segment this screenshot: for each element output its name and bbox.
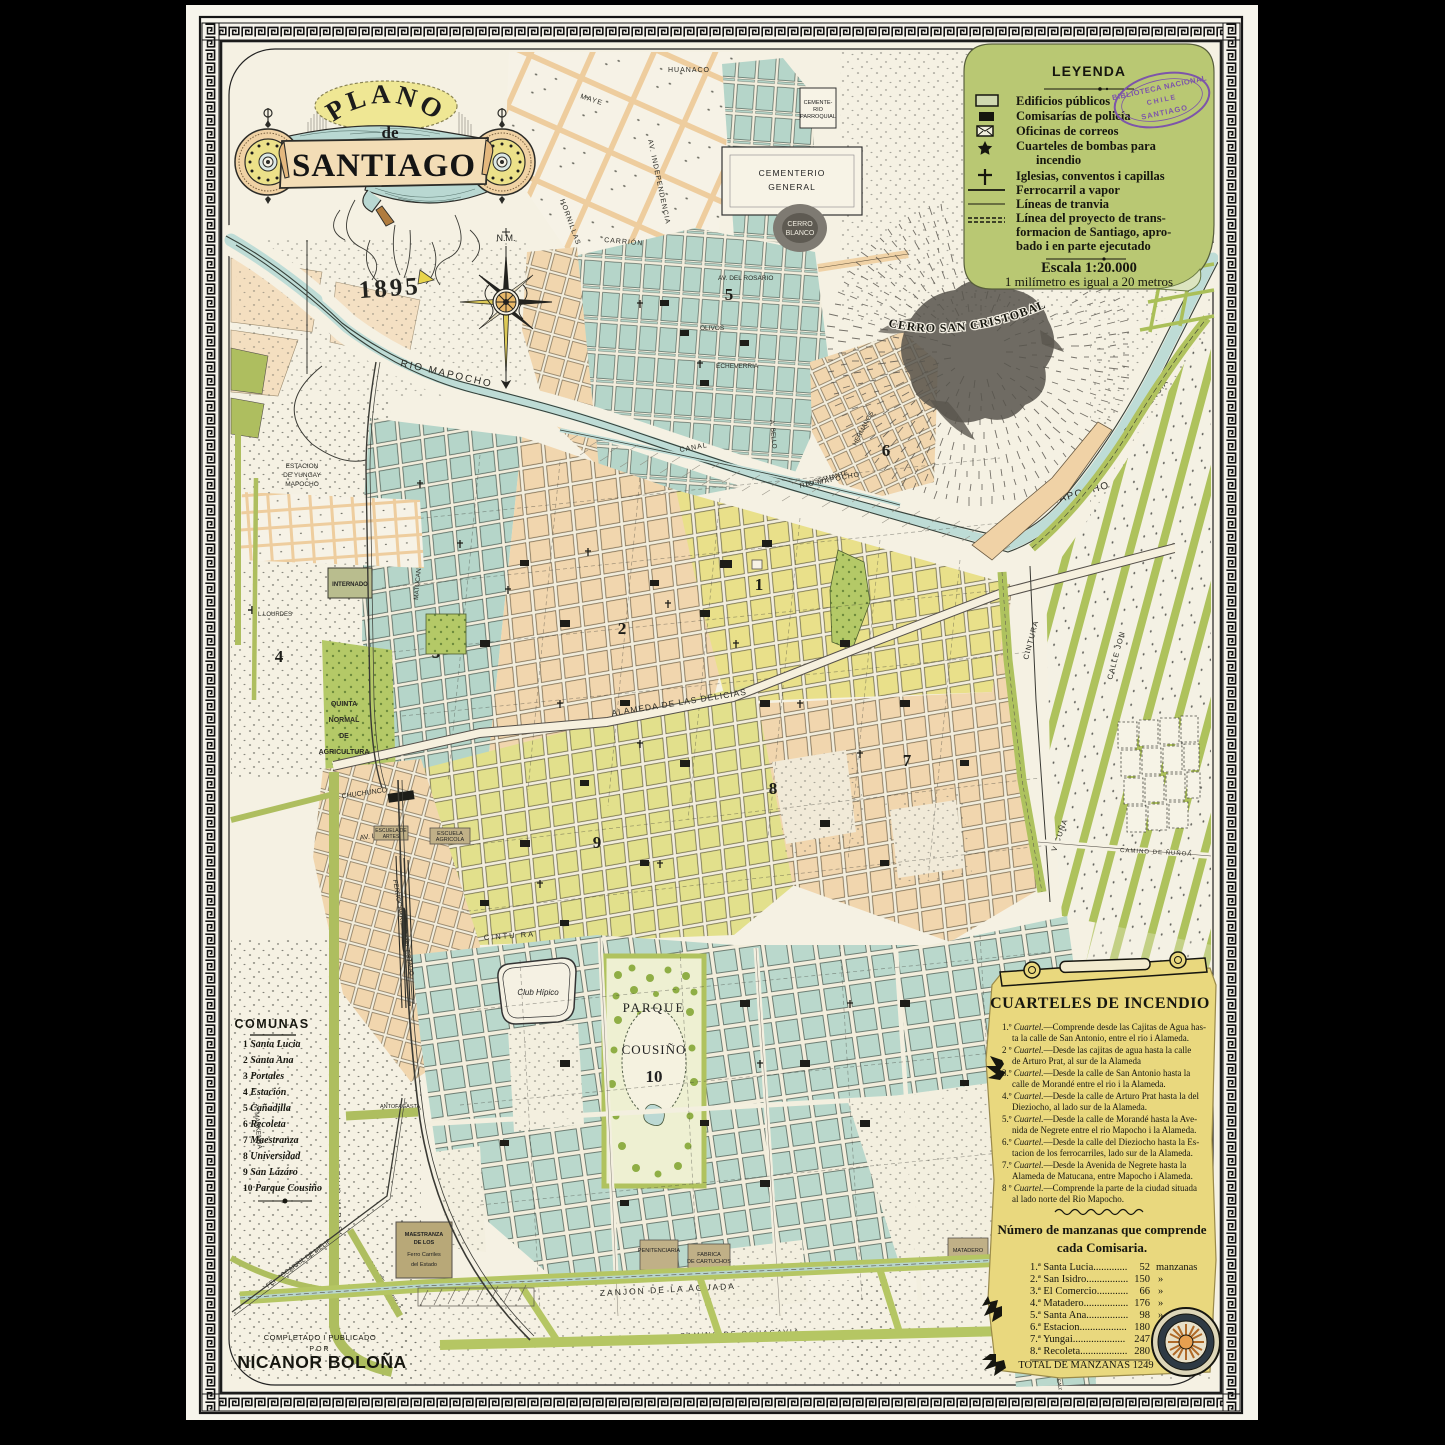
svg-text:cada Comisaria.: cada Comisaria. [1057, 1240, 1147, 1255]
svg-text:SANTIAGO: SANTIAGO [292, 148, 476, 184]
svg-text:1 milímetro es igual a 20 metr: 1 milímetro es igual a 20 metros [1005, 274, 1173, 289]
svg-text:7 Maestranza: 7 Maestranza [243, 1135, 299, 1146]
svg-text:MAPOCHO: MAPOCHO [285, 481, 319, 488]
svg-text:6 Recoleta: 6 Recoleta [243, 1119, 286, 1130]
svg-text:3 Portales: 3 Portales [243, 1071, 284, 1082]
svg-text:formacion de Santiago, apro-: formacion de Santiago, apro- [1016, 225, 1171, 239]
svg-text:INTERNADO: INTERNADO [332, 582, 368, 588]
svg-text:COUSIÑO: COUSIÑO [622, 1042, 687, 1057]
svg-text:DE CARTUCHOS: DE CARTUCHOS [687, 1259, 731, 1265]
svg-text:8 º Cuartel.—Comprende la part: 8 º Cuartel.—Comprende la parte de la ci… [1002, 1183, 1197, 1193]
svg-text:LEYENDA: LEYENDA [1052, 63, 1126, 79]
svg-text:QUINTA: QUINTA [331, 701, 357, 708]
svg-text:2: 2 [618, 619, 627, 638]
svg-text:de Arturo Prat, al sur de la A: de Arturo Prat, al sur de la Alameda [1012, 1056, 1141, 1066]
svg-text:7: 7 [903, 751, 912, 770]
svg-text:4.º Cuartel.—Desde la calle de: 4.º Cuartel.—Desde la calle de Arturo Pr… [1002, 1091, 1200, 1101]
svg-text:»: » [1158, 1274, 1163, 1285]
svg-text:66: 66 [1140, 1286, 1151, 1297]
svg-text:5: 5 [725, 285, 734, 304]
svg-text:Ferrocarril a vapor: Ferrocarril a vapor [1016, 183, 1120, 197]
svg-text:5 Cañadilla: 5 Cañadilla [243, 1103, 291, 1114]
svg-text:1: 1 [755, 575, 764, 594]
svg-text:6.ª Estacion.................: 6.ª Estacion.................. [1030, 1322, 1127, 1333]
svg-text:Cuarteles de bombas para: Cuarteles de bombas para [1016, 139, 1157, 153]
svg-text:1 Santa Lucia: 1 Santa Lucia [243, 1039, 301, 1050]
svg-text:1.ª Santa Lucia.............: 1.ª Santa Lucia............. [1030, 1262, 1127, 1273]
svg-text:Club Hípico: Club Hípico [517, 988, 559, 997]
svg-text:2.ª San Isidro...............: 2.ª San Isidro................ [1030, 1274, 1128, 1285]
svg-text:5.º Cuartel.—Desde la calle de: 5.º Cuartel.—Desde la calle de Morandé h… [1002, 1114, 1197, 1124]
svg-text:98: 98 [1140, 1310, 1151, 1321]
svg-text:150: 150 [1134, 1274, 1150, 1285]
svg-text:COMPLETADO I PUBLICADO: COMPLETADO I PUBLICADO [264, 1333, 377, 1342]
svg-text:AGRICOLA: AGRICOLA [436, 837, 465, 843]
svg-text:1895: 1895 [358, 273, 422, 304]
svg-text:CEMENTERIO: CEMENTERIO [759, 168, 826, 178]
svg-text:4 Estación: 4 Estación [243, 1087, 287, 1098]
svg-text:COMUNAS: COMUNAS [234, 1017, 309, 1031]
svg-text:Líneas de tranvia: Líneas de tranvia [1016, 197, 1110, 211]
svg-text:»: » [1158, 1298, 1163, 1309]
svg-text:Oficinas de correos: Oficinas de correos [1016, 124, 1119, 138]
svg-text:9: 9 [593, 833, 602, 852]
svg-text:RIO: RIO [813, 107, 824, 113]
svg-text:incendio: incendio [1036, 153, 1081, 167]
svg-text:DE: DE [339, 733, 349, 740]
svg-text:6: 6 [882, 441, 891, 460]
svg-text:10 Parque Cousiño: 10 Parque Cousiño [243, 1183, 322, 1194]
svg-text:al lado norte del Rio Mapocho.: al lado norte del Rio Mapocho. [1012, 1194, 1124, 1204]
svg-text:Número de manzanas que compren: Número de manzanas que comprende [998, 1222, 1207, 1237]
svg-text:NICANOR BOLOÑA: NICANOR BOLOÑA [237, 1351, 406, 1372]
svg-text:10: 10 [646, 1067, 663, 1086]
svg-text:8: 8 [769, 779, 778, 798]
svg-text:8.ª Recoleta.................: 8.ª Recoleta.................. [1030, 1346, 1127, 1357]
svg-text:Iglesias, conventos i capillas: Iglesias, conventos i capillas [1016, 169, 1165, 183]
svg-text:AGRICULTURA: AGRICULTURA [319, 749, 370, 756]
svg-text:bado i en parte ejecutado: bado i en parte ejecutado [1016, 239, 1151, 253]
svg-text:FABRICA: FABRICA [697, 1252, 721, 1258]
svg-text:CEMENTE-: CEMENTE- [804, 100, 833, 106]
svg-text:176: 176 [1134, 1298, 1150, 1309]
svg-text:6.º Cuartel.—Desde la calle de: 6.º Cuartel.—Desde la calle del Diezioch… [1002, 1137, 1199, 1147]
svg-text:DE YUNGAY: DE YUNGAY [283, 472, 321, 479]
svg-text:N.M.: N.M. [497, 233, 516, 243]
svg-text:PARQUE: PARQUE [623, 1000, 686, 1015]
svg-text:4: 4 [275, 647, 284, 666]
svg-text:tacion de los ferrocarriles, l: tacion de los ferrocarriles, lado sur de… [1012, 1148, 1193, 1158]
svg-text:ta la calle de San Antonio, en: ta la calle de San Antonio, entre el rio… [1012, 1033, 1189, 1043]
svg-text:CUARTELES DE INCENDIO: CUARTELES DE INCENDIO [990, 995, 1210, 1012]
svg-text:Ferro Carriles: Ferro Carriles [407, 1252, 441, 1258]
svg-text:Dieziocho, al lado sur de la A: Dieziocho, al lado sur de la Alameda. [1012, 1102, 1147, 1112]
svg-text:5.ª Santa Ana................: 5.ª Santa Ana................ [1030, 1310, 1128, 1321]
svg-text:3.ª El Comercio............: 3.ª El Comercio............ [1030, 1286, 1128, 1297]
svg-text:9 San Lázáro: 9 San Lázáro [243, 1167, 298, 1178]
svg-text:nida de Negrete entre el rio M: nida de Negrete entre el rio Mapocho i l… [1012, 1125, 1196, 1135]
svg-text:HUANACO: HUANACO [668, 67, 710, 74]
svg-text:calle de Morandé entre el rio: calle de Morandé entre el rio i la Alame… [1012, 1079, 1166, 1089]
svg-text:»: » [1158, 1286, 1163, 1297]
svg-text:Comisarías de policía: Comisarías de policía [1016, 109, 1131, 123]
svg-text:manzanas: manzanas [1156, 1262, 1197, 1273]
svg-text:Edificios públicos: Edificios públicos [1016, 94, 1110, 108]
svg-text:247: 247 [1134, 1334, 1150, 1345]
svg-text:BLANCO: BLANCO [786, 230, 815, 237]
svg-text:GENERAL: GENERAL [768, 182, 816, 192]
svg-text:180: 180 [1134, 1322, 1150, 1333]
svg-text:del Estado: del Estado [411, 1262, 437, 1268]
svg-text:TOTAL DE MANZANAS 1249: TOTAL DE MANZANAS 1249 [1018, 1360, 1153, 1371]
svg-text:2 º Cuartel.—Desde las cajitas: 2 º Cuartel.—Desde las cajitas de agua h… [1002, 1045, 1191, 1055]
svg-text:MAESTRANZA: MAESTRANZA [405, 1232, 444, 1238]
svg-text:Alameda de Matucana, entre Map: Alameda de Matucana, entre Mapocho i Ala… [1012, 1171, 1193, 1181]
svg-text:CERRO: CERRO [787, 221, 813, 228]
svg-text:AV. DEL ROSARIO: AV. DEL ROSARIO [718, 275, 773, 282]
svg-text:1.º Cuartel.—Comprende desde l: 1.º Cuartel.—Comprende desde las Cajitas… [1002, 1022, 1206, 1032]
svg-text:2 Santa Ana: 2 Santa Ana [243, 1055, 294, 1066]
svg-text:8 Universidad: 8 Universidad [243, 1151, 301, 1162]
svg-text:DE LOS: DE LOS [414, 1240, 435, 1246]
svg-text:7.ª Yungai...................: 7.ª Yungai.................... [1030, 1334, 1125, 1345]
svg-text:NORMAL: NORMAL [329, 717, 360, 724]
svg-text:280: 280 [1134, 1346, 1150, 1357]
svg-text:ECHEVERRIA: ECHEVERRIA [716, 363, 759, 370]
svg-text:PARROQUIAL: PARROQUIAL [800, 114, 836, 120]
svg-text:3.º Cuartel.—Desde la calle de: 3.º Cuartel.—Desde la calle de San Anton… [1002, 1068, 1190, 1078]
svg-text:OLIVOS: OLIVOS [700, 325, 725, 332]
svg-text:Línea del proyecto de trans-: Línea del proyecto de trans- [1016, 211, 1166, 225]
svg-text:52: 52 [1140, 1262, 1151, 1273]
svg-text:7.º Cuartel.—Desde la Avenida: 7.º Cuartel.—Desde la Avenida de Negrete… [1002, 1160, 1186, 1170]
svg-text:L.LOURDES: L.LOURDES [258, 612, 292, 618]
svg-text:4.ª Matadero.................: 4.ª Matadero................. [1030, 1298, 1128, 1309]
svg-text:ESTACION: ESTACION [286, 463, 319, 470]
svg-text:PENITENCIARIA: PENITENCIARIA [638, 1248, 681, 1254]
svg-text:MATADERO: MATADERO [953, 1248, 984, 1254]
svg-text:ARTES: ARTES [383, 834, 400, 840]
